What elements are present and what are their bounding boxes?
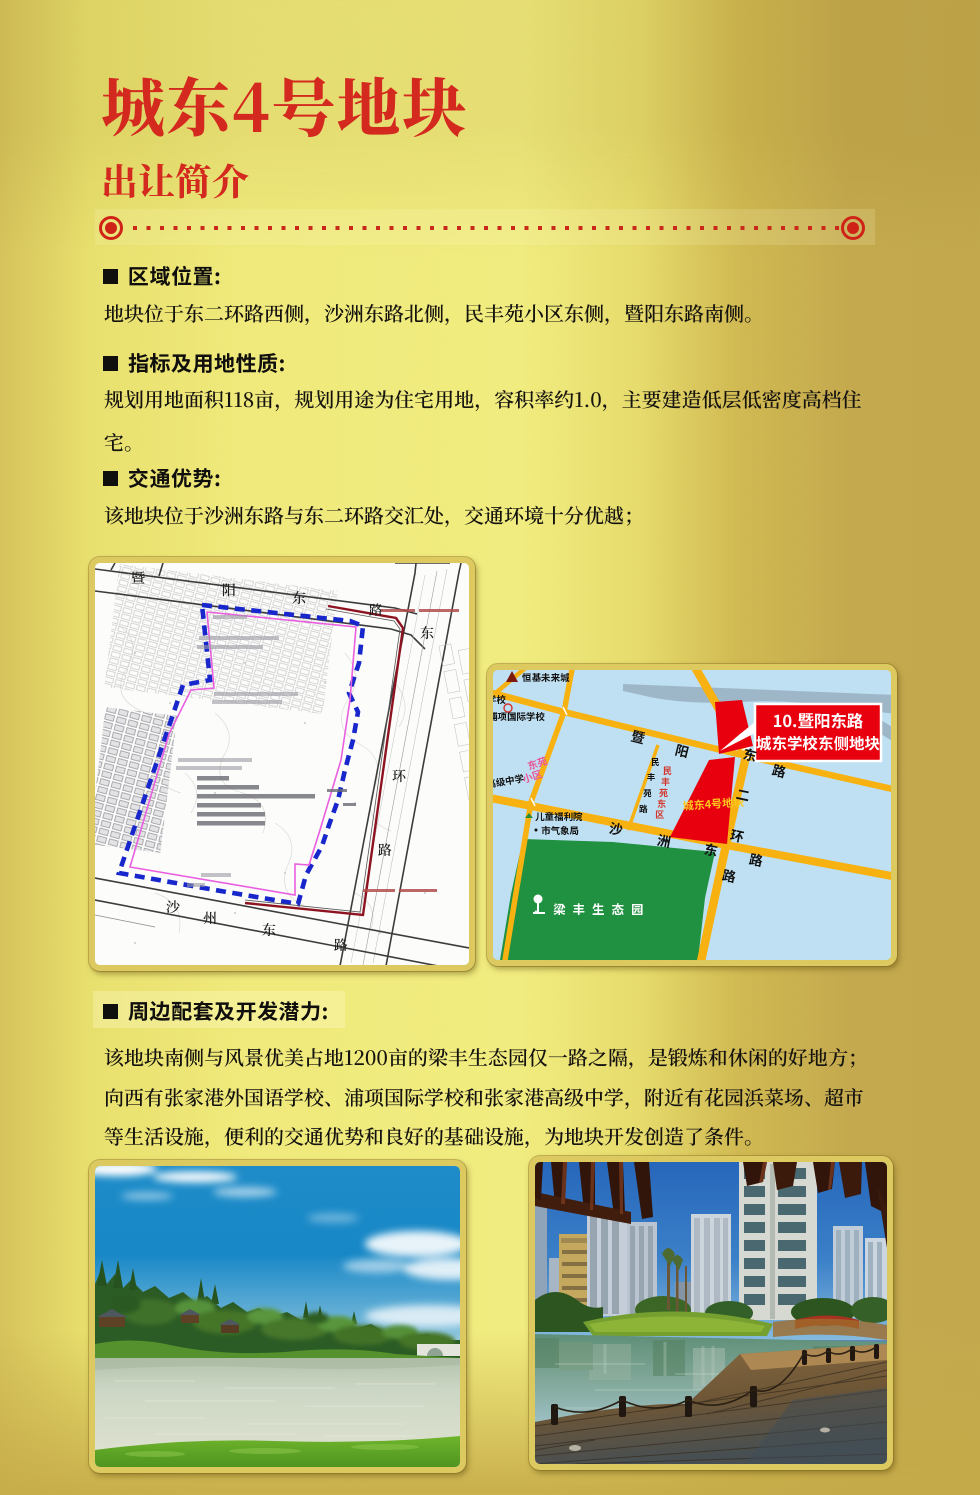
svg-text:浦项国际学校: 浦项国际学校 <box>493 709 546 723</box>
svg-text:民: 民 <box>651 756 660 768</box>
svg-text:路: 路 <box>639 803 648 815</box>
svg-text:恒基未来城: 恒基未来城 <box>522 670 570 684</box>
svg-text:丰: 丰 <box>647 771 656 783</box>
svg-text:路: 路 <box>378 840 392 860</box>
svg-text:阳: 阳 <box>222 580 236 600</box>
svg-text:城东学校东侧地块: 城东学校东侧地块 <box>756 732 881 754</box>
svg-text:东: 东 <box>262 920 276 940</box>
svg-text:区: 区 <box>655 808 664 821</box>
svg-text:东: 东 <box>292 588 306 608</box>
svg-text:市气象局: 市气象局 <box>541 823 580 837</box>
svg-text:暨: 暨 <box>131 568 145 588</box>
svg-text:苑: 苑 <box>642 787 652 799</box>
svg-text:学校: 学校 <box>493 692 507 706</box>
svg-text:路: 路 <box>369 600 383 620</box>
svg-text:梁丰生态园: 梁丰生态园 <box>553 899 651 918</box>
svg-text:路: 路 <box>334 935 348 955</box>
svg-text:州: 州 <box>203 908 217 928</box>
svg-text:东: 东 <box>420 623 434 643</box>
svg-text:环: 环 <box>392 766 406 786</box>
svg-text:儿童福利院: 儿童福利院 <box>534 809 583 823</box>
svg-text:10.暨阳东路: 10.暨阳东路 <box>773 708 864 732</box>
svg-text:沙: 沙 <box>166 897 180 917</box>
